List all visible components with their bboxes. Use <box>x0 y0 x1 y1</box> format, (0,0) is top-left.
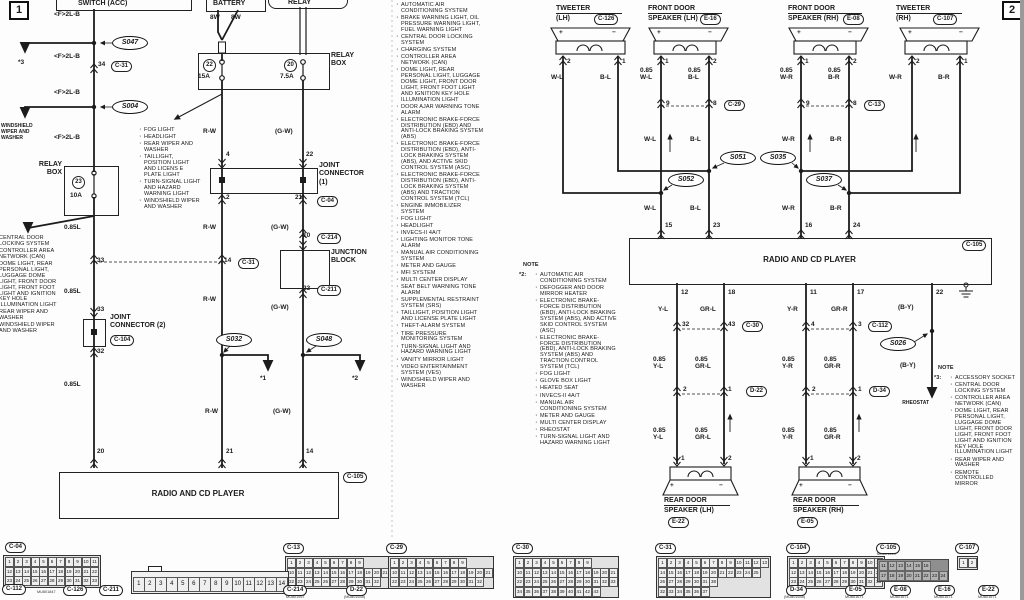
rheostat-label: RHEOSTAT <box>895 401 929 407</box>
pin-number: 11 <box>90 557 99 567</box>
part-number-e08: MU801671 <box>890 596 909 600</box>
pinout-c30-item: 101112131415161718192021 <box>515 568 617 578</box>
wire-label-rw: R-W <box>203 224 216 231</box>
systems-list-item: VIDEO ENTERTAINMENT SYSTEM (VES) <box>396 365 484 377</box>
note3-list-item: REAR WIPER AND WASHER <box>950 458 1016 470</box>
fuse-22-rating: 15A <box>198 73 210 80</box>
pinout-c04-item: 1234567891011 <box>5 557 99 567</box>
systems-list-item: CHARGING SYSTEM <box>396 48 484 54</box>
systems-list-item: LIGHTING MONITOR TONE ALARM <box>396 238 484 250</box>
wire-label-f2lb: <F>2L-B <box>54 134 80 141</box>
pinout-c105-item: 111213141516 <box>879 561 947 571</box>
pin-23: 23 <box>303 285 310 292</box>
junction-block-box <box>280 250 330 289</box>
systems-list-item: MFI SYSTEM <box>396 271 484 277</box>
pinout-c29-item: 2223242526272829303132 <box>390 577 492 587</box>
wire-label-wl: W-L <box>644 136 656 143</box>
note2-list-item: AUTOMATIC AIR CONDITIONING SYSTEM <box>535 273 617 285</box>
note2-list-item: TURN-SIGNAL LIGHT AND HAZARD WARNING LIG… <box>535 435 617 447</box>
speaker-plus: + <box>559 29 563 36</box>
fog-systems-list-item: REAR WIPER AND WASHER <box>139 142 201 154</box>
speaker-plus: + <box>657 29 661 36</box>
pin-number: 9 <box>458 558 467 568</box>
connector-code-c112: C-112 <box>868 321 892 332</box>
pin-21: 21 <box>295 194 302 201</box>
tweeter-rh-side: (RH) <box>896 15 911 23</box>
c29-pin-9: 9 <box>666 100 670 107</box>
fog-systems-list-item: HEADLIGHT <box>139 135 201 141</box>
strip-code-e16: E-16 <box>934 585 955 596</box>
pin-number: 21 <box>609 568 618 578</box>
page-marker-2: 2 <box>1002 1 1022 20</box>
pin-number: 37 <box>701 587 710 597</box>
speaker-minus: − <box>848 29 852 36</box>
wire-label-br: B-R <box>938 74 950 81</box>
front-door-speaker-lh-side: SPEAKER (LH) <box>648 15 698 23</box>
connector-code-c126: C-126 <box>594 14 618 25</box>
splice-s051: S051 <box>720 151 756 165</box>
strip-code-c29: C-29 <box>386 543 407 554</box>
pinout-c29-item: 123456789 <box>390 558 492 568</box>
splice-s004: S004 <box>112 100 148 114</box>
pinout-c105: 1112131415161718192021222324 <box>877 559 949 582</box>
splice-s026: S026 <box>880 337 916 351</box>
fog-systems-list: FOG LIGHTHEADLIGHTREAR WIPER AND WASHERT… <box>139 128 201 212</box>
relay-label: RELAY <box>288 0 311 7</box>
rds-lh-pin: 2 <box>728 455 732 462</box>
ref-star1: *1 <box>260 375 266 382</box>
battery-label: BATTERY <box>213 0 245 8</box>
pinout-c104-item: 1213141516171819202122 <box>789 568 883 578</box>
d22-pin-2: 2 <box>683 386 687 393</box>
left-systems-list-item: REAR WIPER AND WASHER <box>0 310 60 322</box>
wire-label-085grr: 0.85 GR-R <box>824 427 841 442</box>
front-door-speaker-lh-title: FRONT DOOR <box>648 5 722 14</box>
radio-pin-16: 16 <box>805 222 812 229</box>
wire-label-085yr: 0.85 Y-R <box>782 356 795 371</box>
pin-14: 14 <box>224 257 231 264</box>
pin-number: 9 <box>355 558 364 568</box>
wire-label-bl: B-L <box>690 205 701 212</box>
pinout-c30: 1234567891011121314151617181920212223242… <box>513 556 619 598</box>
pin-number: 13 <box>760 558 769 568</box>
wire-label-085yr: 0.85 Y-R <box>782 427 795 442</box>
radio-pin-22: 22 <box>936 289 943 296</box>
fuse-20-rating: 7.5A <box>280 73 294 80</box>
pinout-c29-item: 101112131415161718192021 <box>390 568 492 578</box>
wire-label-085bl: 0.85 B-L <box>688 67 701 82</box>
splice-s048: S048 <box>306 333 342 347</box>
pin-number: 13 <box>265 577 277 592</box>
note3-list-item: CONTROLLER AREA NETWORK (CAN) <box>950 396 1016 408</box>
wire-label-br: B-R <box>830 205 842 212</box>
systems-list: AUTOMATIC AIR CONDITIONING SYSTEMBRAKE W… <box>396 3 484 391</box>
connector-code-c31-mid: C-31 <box>238 258 259 269</box>
speaker-minus: − <box>848 482 852 489</box>
wire-label-085l: 0.85L <box>64 224 81 231</box>
rear-door-speaker-lh-side: SPEAKER (LH) <box>664 507 714 515</box>
pin-number: 2 <box>968 558 977 568</box>
splice-s052: S052 <box>668 173 704 187</box>
rds-rh-pin: 1 <box>810 455 814 462</box>
pin-14: 14 <box>306 448 313 455</box>
wire-label-gw: (G-W) <box>271 224 289 231</box>
ref-star3: *3 <box>18 59 24 66</box>
pin-number: 22 <box>90 567 99 577</box>
systems-list-item: MULTI CENTER DISPLAY <box>396 278 484 284</box>
note2-list: AUTOMATIC AIR CONDITIONING SYSTEMDEFOGGE… <box>535 273 617 448</box>
systems-list-item: CENTRAL DOOR LOCKING SYSTEM <box>396 35 484 47</box>
systems-list-item: AUTOMATIC AIR CONDITIONING SYSTEM <box>396 3 484 15</box>
d22-pin-1: 1 <box>728 386 732 393</box>
wire-label-rw: R-W <box>203 296 216 303</box>
radio-pin-15: 15 <box>665 222 672 229</box>
note2-list-item: ELECTRONIC BRAKE-FORCE DISTRIBUTION (EBD… <box>535 299 617 334</box>
pinout-c31-item: 26272829303138 <box>658 577 769 587</box>
wire-label-by: (B-Y) <box>898 304 914 311</box>
wire-label-085wr: 0.85 W-R <box>780 67 793 82</box>
pin-number: 5 <box>177 577 189 592</box>
systems-list-item: SUPPLEMENTAL RESTRAINT SYSTEM (SRS) <box>396 298 484 310</box>
pinout-c31-item: 323334353637 <box>658 587 769 597</box>
speaker-minus: − <box>959 29 963 36</box>
note2-tag: *2: <box>519 273 526 279</box>
wire-label-f2lb: <F>2L-B <box>54 89 80 96</box>
wire-label-8w: 8W <box>231 14 241 21</box>
pinout-c30-item: 123456789 <box>515 558 617 568</box>
wire-label-wr: W-R <box>889 74 902 81</box>
fds-rh-pin: 2 <box>853 58 857 65</box>
systems-list-item: THEFT-ALARM SYSTEM <box>396 324 484 330</box>
note2-title: NOTE <box>523 263 539 269</box>
d34-pin-2: 2 <box>812 386 816 393</box>
part-number-e22: MU801671 <box>978 596 997 600</box>
c112-pin-3: 3 <box>858 321 862 328</box>
strip-code-c30: C-30 <box>512 543 533 554</box>
wire-label-085l: 0.85L <box>64 288 81 295</box>
radio-pin-24: 24 <box>853 222 860 229</box>
d34-pin-1: 1 <box>858 386 862 393</box>
systems-list-item: ELECTRONIC BRAKE-FORCE DISTRIBUTION (EBD… <box>396 142 484 172</box>
connector-code-e05: E-05 <box>797 517 818 528</box>
speaker-minus: − <box>719 482 723 489</box>
wire-label-gw: (G-W) <box>273 408 291 415</box>
systems-list-item: TAILLIGHT, POSITION LIGHT AND LICENSE PL… <box>396 311 484 323</box>
tweeter-lh-pin: 1 <box>622 58 626 65</box>
wire-label-yl: Y-L <box>658 306 668 313</box>
fds-rh-pin: 1 <box>805 58 809 65</box>
connector-code-c30: C-30 <box>742 321 763 332</box>
part-number-e16: MU801671 <box>934 596 953 600</box>
rear-door-speaker-rh-title: REAR DOOR <box>793 497 859 506</box>
note3-list: ACCESSORY SOCKETCENTRAL DOOR LOCKING SYS… <box>950 376 1016 489</box>
c30-pin-32: 32 <box>682 321 689 328</box>
wire-label-8w: 8W <box>210 14 220 21</box>
systems-list-item: MANUAL AIR CONDITIONING SYSTEM <box>396 251 484 263</box>
note2-list-item: RHEOSTAT <box>535 428 617 434</box>
wire-label-085yl: 0.85 Y-L <box>653 427 666 442</box>
pin-number: 24 <box>939 571 948 581</box>
pinout-c211-item: 1234567891011121314 <box>133 577 287 592</box>
systems-list-item: WINDSHIELD WIPER AND WASHER <box>396 378 484 390</box>
pin-number: 7 <box>199 577 211 592</box>
note2-list-item: FOG LIGHT <box>535 372 617 378</box>
c30-pin-43: 43 <box>728 321 735 328</box>
radio-pin-12: 12 <box>681 289 688 296</box>
systems-list-item: TIRE PRESSURE MONITORING SYSTEM <box>396 332 484 344</box>
pin-number: 11 <box>243 577 255 592</box>
radio-pin-18: 18 <box>728 289 735 296</box>
note3-tag: *3: <box>934 376 941 382</box>
connector-code-c214: C-214 <box>317 233 341 244</box>
ignition-switch-label: SWITCH (ACC) <box>78 0 127 8</box>
pinout-c104-item: 1234567891011 <box>789 558 883 568</box>
strip-code-c126: C-126 <box>63 585 87 596</box>
fds-lh-pin: 2 <box>713 58 717 65</box>
pin-number: 10 <box>232 577 244 592</box>
speaker-minus: − <box>708 29 712 36</box>
fog-systems-list-item: TAILLIGHT, POSITION LIGHT AND LICENS E P… <box>139 155 201 179</box>
joint-connector-2-box <box>83 319 106 347</box>
wire-label-grl: GR-L <box>700 306 716 313</box>
pin-number: 38 <box>709 577 718 587</box>
pin-10: 10 <box>303 232 310 239</box>
tweeter-lh-title: TWEETER <box>556 5 622 14</box>
c112-pin-4: 4 <box>811 321 815 328</box>
fuse-20-number: 20 <box>284 59 297 72</box>
tweeter-rh-pin: 2 <box>916 58 920 65</box>
joint-connector-2-label: JOINT CONNECTOR (2) <box>110 314 165 331</box>
pinout-c211: 1234567891011121314 <box>131 571 289 594</box>
pinout-c30-item: 222324252627282930313233 <box>515 577 617 587</box>
wire-label-f2lb: <F>2L-B <box>54 11 80 18</box>
pin-32: 32 <box>97 348 104 355</box>
radio-label-p2: RADIO AND CD PLAYER <box>629 255 990 265</box>
left-systems-list-item: CONTROLLER AREA NETWORK (CAN) <box>0 249 60 261</box>
connector-code-e16: E-16 <box>700 14 721 25</box>
part-number-e05: MU801671 <box>845 596 864 600</box>
pinout-c04-item: 1213141516171819202122 <box>5 567 99 577</box>
strip-code-c105: C-105 <box>876 543 900 554</box>
pin-number: 32 <box>475 577 484 587</box>
pinout-c107: 12 <box>957 556 978 570</box>
connector-code-c31-left: C-31 <box>111 61 132 72</box>
fuse-23-rating: 10A <box>70 192 82 199</box>
speaker-minus: − <box>612 29 616 36</box>
joint-connector-1-label: JOINT CONNECTOR (1) <box>319 162 364 187</box>
systems-list-item: BRAKE WARNING LIGHT, OIL PRESSURE WARNIN… <box>396 16 484 34</box>
note2-list-item: MANUAL AIR CONDITIONING SYSTEM <box>535 401 617 413</box>
wire-label-yr: Y-R <box>787 306 798 313</box>
pin-number: 1 <box>133 577 145 592</box>
part-number-d22: (MU801645) <box>344 596 365 600</box>
wire-label-wl: W-L <box>551 74 563 81</box>
pin-number: 32 <box>372 577 381 587</box>
strip-code-c211: C-211 <box>99 585 123 596</box>
pinout-c31-item: 141516171819202122232425 <box>658 568 769 578</box>
front-door-speaker-rh-title: FRONT DOOR <box>788 5 862 14</box>
wire-label-gw: (G-W) <box>271 304 289 311</box>
wire-label-by: (B-Y) <box>900 362 916 369</box>
fog-systems-list-item: WINDSHIELD WIPER AND WASHER <box>139 199 201 211</box>
pinout-c31-item: 12345678910111213 <box>658 558 769 568</box>
radio-pin-11: 11 <box>810 289 817 296</box>
pinout-c13: 1234567891011121314151617181920212223242… <box>285 556 391 589</box>
part-number-c214: MU801957 <box>286 596 305 600</box>
note2-list-item: INVECS-II 4A/T <box>535 394 617 400</box>
wire-label-085l: 0.85L <box>64 381 81 388</box>
systems-list-item: HEADLIGHT <box>396 224 484 230</box>
pin-number: 25 <box>752 568 761 578</box>
connector-code-c13: C-13 <box>864 100 885 111</box>
note2-list-item: GLOVE BOX LIGHT <box>535 379 617 385</box>
pin-2: 2 <box>226 194 230 201</box>
windshield-note: WINDSHIELD WIPER AND WASHER <box>1 124 33 141</box>
rear-door-speaker-lh-title: REAR DOOR <box>664 497 730 506</box>
pinout-c104: 1234567891011121314151617181920212223242… <box>787 556 885 589</box>
wire-label-wr: W-R <box>782 205 795 212</box>
tweeter-rh-pin: 1 <box>964 58 968 65</box>
pin-number: 21 <box>484 568 493 578</box>
pin-number: 33 <box>609 577 618 587</box>
relay-box-left <box>64 166 119 216</box>
pinout-c04: 1234567891011121314151617181920212223242… <box>3 555 101 588</box>
systems-list-item: VANITY MIRROR LIGHT <box>396 358 484 364</box>
rear-door-speaker-rh-side: SPEAKER (RH) <box>793 507 844 515</box>
pinout-c13-item: 123456789 <box>287 558 389 568</box>
connector-code-e22: E-22 <box>668 517 689 528</box>
ground-icon <box>959 283 973 297</box>
fog-systems-list-item: TURN-SIGNAL LIGHT AND HAZARD WARNING LIG… <box>139 180 201 198</box>
strip-code-e22: E-22 <box>978 585 999 596</box>
wiring-diagram-page: 1 2 SWITCH (ACC) BATTERY RELAY RELAY BOX… <box>0 0 1024 600</box>
pin-number: 43 <box>592 587 601 597</box>
note3-list-item: DOME LIGHT, REAR PERSONAL LIGHT, LUGGAGE… <box>950 409 1016 456</box>
strip-code-e08: E-08 <box>890 585 911 596</box>
fuse-22-number: 22 <box>203 59 216 72</box>
connector-code-c104: C-104 <box>110 335 134 346</box>
note3-title: NOTE <box>938 366 954 372</box>
c29-pin-8: 8 <box>713 100 717 107</box>
splice-s035: S035 <box>760 151 796 165</box>
pin-number: 2 <box>144 577 156 592</box>
speaker-plus: + <box>908 29 912 36</box>
systems-list-item: DOOR AJAR WARNING TONE ALARM <box>396 105 484 117</box>
pin-33: 33 <box>97 306 104 313</box>
connector-code-c29: C-29 <box>724 100 745 111</box>
pin-number: 12 <box>254 577 266 592</box>
wire-label-wl: W-L <box>644 205 656 212</box>
fog-systems-list-item: FOG LIGHT <box>139 128 201 134</box>
wire-label-gw: (G-W) <box>275 128 293 135</box>
wire-label-bl: B-L <box>600 74 611 81</box>
systems-list-item: DOME LIGHT, REAR PERSONAL LIGHT, LUGGAGE… <box>396 68 484 103</box>
connector-code-c105-p1: C-105 <box>343 472 367 483</box>
strip-code-c13: C-13 <box>283 543 304 554</box>
left-systems-list-item: CENTRAL DOOR LOCKING SYSTEM <box>0 236 60 248</box>
left-systems-list: CENTRAL DOOR LOCKING SYSTEMCONTROLLER AR… <box>0 236 60 336</box>
connector-code-c107: C-107 <box>933 14 957 25</box>
relay-box-left-label: RELAY BOX <box>36 161 62 178</box>
note2-list-item: DEFOGGER AND DOOR MIRROR HEATER <box>535 286 617 298</box>
joint-connector-1-box <box>210 168 318 194</box>
systems-list-item: FOG LIGHT <box>396 217 484 223</box>
pin-number: 9 <box>221 577 233 592</box>
pinout-c107-item: 12 <box>959 558 976 568</box>
pin-21: 21 <box>226 448 233 455</box>
c13-pin-8: 8 <box>853 100 857 107</box>
pin-number: 4 <box>166 577 178 592</box>
connector-code-c105-p2: C-105 <box>962 240 986 251</box>
strip-code-d22: D-22 <box>346 585 367 596</box>
note2-list-item: MULTI CENTER DISPLAY <box>535 421 617 427</box>
note2-list-item: HEATED SEAT <box>535 386 617 392</box>
strip-code-c04: C-04 <box>5 542 26 553</box>
systems-list-item: ELECTRONIC BRAKE-FORCE DISTRIBUTION (EBD… <box>396 173 484 203</box>
fuse-23-number: 23 <box>72 176 85 189</box>
connector-code-c04: C-04 <box>317 196 338 207</box>
pin-20: 20 <box>97 448 104 455</box>
pin-number: 33 <box>90 576 99 586</box>
splice-s032: S032 <box>216 333 252 347</box>
wire-label-085grr: 0.85 GR-R <box>824 356 841 371</box>
wire-label-bl: B-L <box>690 136 701 143</box>
pin-22: 22 <box>306 151 313 158</box>
connector-code-e08: E-08 <box>843 14 864 25</box>
radio-pin-23: 23 <box>713 222 720 229</box>
rds-rh-pin: 2 <box>857 455 861 462</box>
strip-code-c107: C-107 <box>955 543 979 554</box>
systems-list-item: METER AND GAUGE <box>396 264 484 270</box>
wire-label-085grl: 0.85 GR-L <box>695 427 711 442</box>
connector-code-c211: C-211 <box>317 285 341 296</box>
tweeter-lh-side: (LH) <box>556 15 570 23</box>
scan-edge <box>1020 0 1024 600</box>
systems-list-item: INVECS-II 4A/T <box>396 231 484 237</box>
speaker-plus: + <box>797 29 801 36</box>
wire-label-085wl: 0.85 W-L <box>640 67 653 82</box>
radio-label-p1: RADIO AND CD PLAYER <box>59 489 337 499</box>
pin-number: 9 <box>583 558 592 568</box>
radio-pin-17: 17 <box>857 289 864 296</box>
splice-s037: S037 <box>806 173 842 187</box>
part-number-d34: (MU801645) <box>784 596 805 600</box>
wire-label-085grl: 0.85 GR-L <box>695 356 711 371</box>
fds-lh-pin: 1 <box>665 58 669 65</box>
wire-label-wr: W-R <box>782 136 795 143</box>
strip-code-d34: D-34 <box>786 585 807 596</box>
note3-list-item: REMOTE CONTROLLED MIRROR <box>950 471 1016 489</box>
wire-label-br: B-R <box>830 136 842 143</box>
pin-number: 6 <box>188 577 200 592</box>
pin-34: 34 <box>98 61 105 68</box>
strip-code-e05: E-05 <box>845 585 866 596</box>
tweeter-rh-title: TWEETER <box>896 5 962 14</box>
part-number-c112: MU801847 <box>37 591 56 595</box>
left-systems-list-item: WINDSHIELD WIPER AND WASHER <box>0 323 60 335</box>
pin-4: 4 <box>226 151 230 158</box>
speaker-plus: + <box>670 482 674 489</box>
pinout-c30-item: 34353637383940414243 <box>515 587 617 597</box>
relay-box-right-label: RELAY BOX <box>331 52 354 69</box>
note2-list-item: METER AND GAUGE <box>535 414 617 420</box>
pinout-c29: 1234567891011121314151617181920212223242… <box>388 556 494 589</box>
speaker-plus: + <box>799 482 803 489</box>
note2-list-item: ELECTRONIC BRAKE-FORCE DISTRIBUTION (EBD… <box>535 336 617 371</box>
strip-code-c104: C-104 <box>786 543 810 554</box>
systems-list-item: ELECTRONIC BRAKE-FORCE DISTRIBUTION (EBD… <box>396 118 484 142</box>
left-systems-list-item: DOME LIGHT, REAR PERSONAL LIGHT, LUGGAGE… <box>0 262 60 309</box>
